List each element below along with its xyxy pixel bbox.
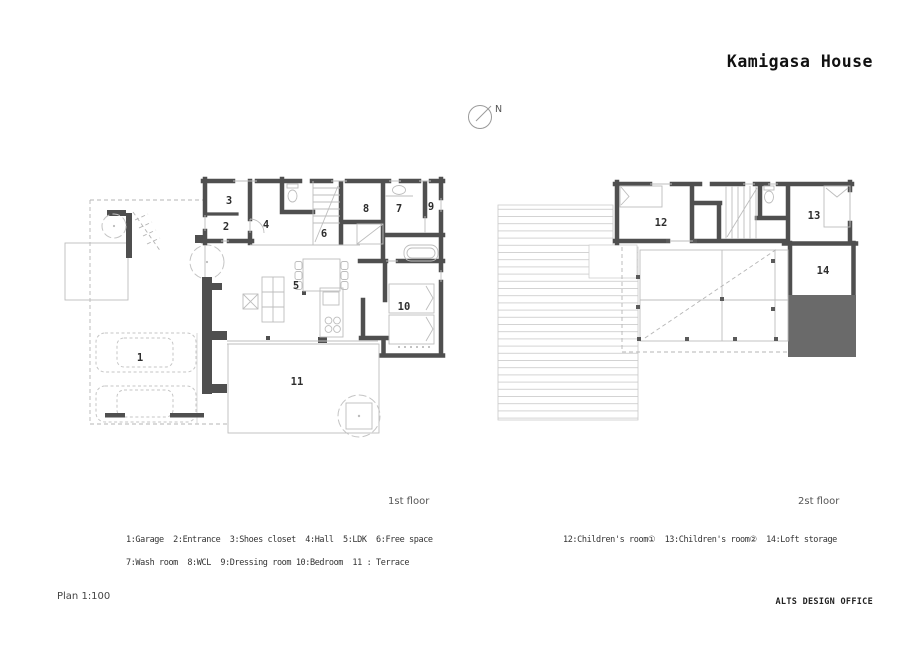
kitchen-icon <box>320 288 343 337</box>
floor2-stairs <box>726 186 757 239</box>
north-arrow-icon: N <box>469 104 503 129</box>
design-office-label: ALTS DESIGN OFFICE <box>775 597 873 607</box>
room-label-bedroom: 10 <box>398 301 411 313</box>
room-label-wash-room: 7 <box>396 203 402 215</box>
car-outline <box>96 333 204 422</box>
floor2-plan: 12 13 14 <box>498 182 856 420</box>
tree-icon <box>102 214 126 238</box>
bed-icon <box>620 186 662 207</box>
floor1-legend-line1: 1:Garage 2:Entrance 3:Shoes closet 4:Hal… <box>126 535 433 545</box>
room-label-free-space: 6 <box>321 228 327 240</box>
page-title: Kamigasa House <box>727 52 873 71</box>
room-label-loft-storage: 14 <box>817 265 830 277</box>
floor2-caption: 2st floor <box>798 496 839 507</box>
sofa-icon <box>262 277 284 322</box>
north-label: N <box>495 104 502 115</box>
room-label-shoes-closet: 3 <box>226 195 232 207</box>
tv-icon <box>243 294 258 309</box>
room-label-dressing-room: 9 <box>428 201 434 213</box>
tree-icon <box>190 245 224 279</box>
floor1-walls <box>202 179 443 394</box>
loft-dark-mass <box>788 295 856 357</box>
entry-steps <box>107 210 205 258</box>
room-label-childrens-room-2: 13 <box>808 210 821 222</box>
terrace-area <box>228 344 379 433</box>
floor1-plan: 1 2 3 4 5 6 7 8 9 10 11 <box>65 179 443 437</box>
bed-icon <box>389 284 434 344</box>
washbasin-icon <box>393 186 406 195</box>
planter-tree-icon <box>338 395 380 437</box>
room-label-entrance: 2 <box>223 221 229 233</box>
room-label-hall: 4 <box>263 219 269 231</box>
room-label-garage: 1 <box>137 352 143 364</box>
toilet-icon <box>287 184 298 202</box>
bathtub-icon <box>404 245 438 261</box>
room-label-childrens-room-1: 12 <box>655 217 668 229</box>
toilet-icon <box>764 186 774 203</box>
bed-icon <box>824 186 850 227</box>
floor-plan-drawing: N <box>0 0 920 650</box>
room-label-wcl: 8 <box>363 203 369 215</box>
floor1-caption: 1st floor <box>388 496 429 507</box>
balcony-deck <box>622 239 788 352</box>
room-label-terrace: 11 <box>291 376 304 388</box>
drawing-sheet: N <box>0 0 920 650</box>
engawa-dots <box>398 346 430 348</box>
dining-table-icon <box>295 259 348 291</box>
room-label-ldk: 5 <box>293 280 299 292</box>
floor2-legend-line1: 12:Children's room① 13:Children's room② … <box>563 535 837 545</box>
plan-scale-label: Plan 1:100 <box>57 591 110 602</box>
floor1-legend-line2: 7:Wash room 8:WCL 9:Dressing room 10:Bed… <box>126 558 409 568</box>
